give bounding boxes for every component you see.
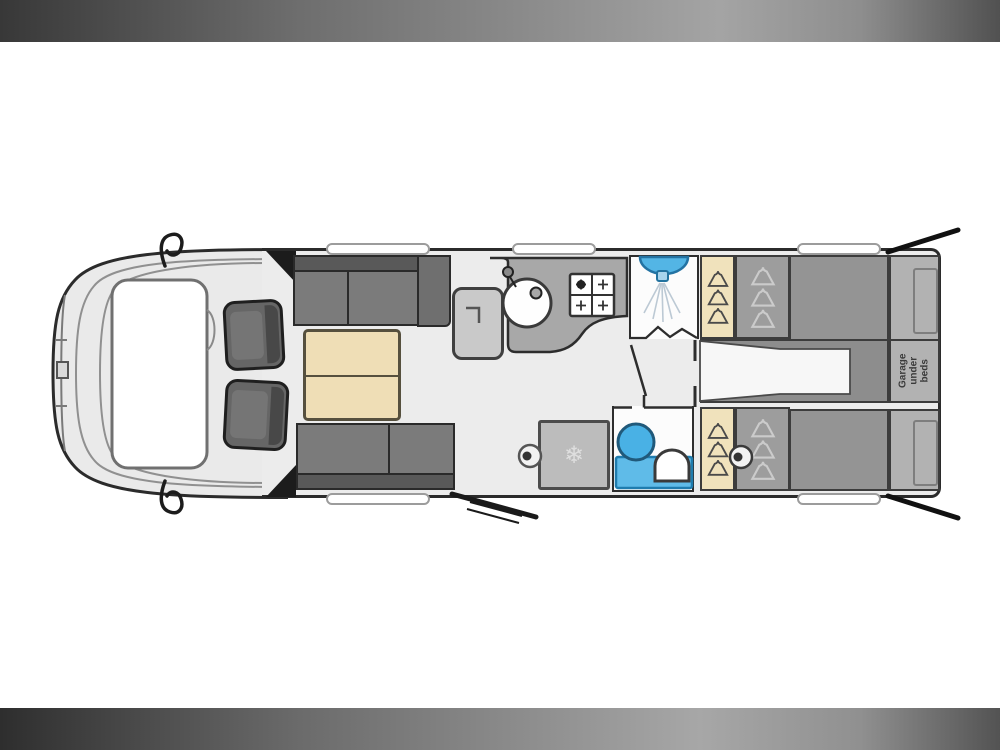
sofa-top-corner-seat	[417, 255, 451, 327]
cushion-divider	[388, 425, 390, 473]
entry-step-lines	[467, 502, 522, 523]
rear-corner-trim-bottom	[888, 496, 958, 518]
washroom	[612, 406, 694, 492]
seat-backrest	[264, 305, 280, 364]
window-top-lounge	[326, 243, 430, 255]
single-bed-bottom	[789, 409, 889, 491]
window-bottom-lounge	[326, 493, 430, 505]
bottom-gradient-bar	[0, 708, 1000, 750]
bonnet-line-outer	[76, 259, 288, 487]
wing-mirror-top-icon	[161, 234, 182, 266]
front-bumper-line	[61, 295, 65, 451]
garage-label: Garage under beds	[898, 348, 932, 395]
seat-cushion	[230, 390, 268, 440]
tv-cabinet	[452, 287, 504, 360]
seat-backrest	[268, 387, 284, 446]
snowflake-icon: ❄	[564, 441, 584, 470]
hanger-icon	[706, 418, 730, 480]
cab-seat-driver	[222, 298, 286, 371]
hanger-icon	[706, 266, 730, 328]
windscreen	[112, 280, 207, 468]
wardrobe-top-gray	[735, 255, 790, 339]
window-top-bedroom	[797, 243, 881, 255]
fridge: ❄	[538, 420, 610, 490]
window-bottom-bedroom	[797, 493, 881, 505]
cab-seat-passenger	[222, 378, 290, 451]
sofa-top-cushions	[293, 270, 419, 326]
garage-cell: Garage under beds	[889, 339, 940, 403]
shower-cubicle	[629, 255, 699, 339]
pillow-top	[913, 268, 938, 334]
pillow-bottom	[913, 420, 938, 486]
bumper-ticks	[56, 340, 67, 406]
floorplan-canvas: ❄	[0, 0, 1000, 750]
wardrobe-top-tan	[700, 255, 735, 339]
windscreen-bump	[207, 310, 215, 350]
seat-cushion	[230, 311, 264, 361]
front-badge	[57, 362, 68, 378]
single-bed-top	[789, 255, 889, 341]
dinette-table	[303, 329, 401, 421]
window-top-kitchen	[512, 243, 596, 255]
hanger-icon	[747, 415, 779, 483]
wing-mirror-bottom-icon	[161, 481, 182, 513]
table-leaf-split	[306, 375, 398, 377]
cushion-divider	[347, 272, 349, 324]
top-gradient-bar	[0, 0, 1000, 42]
sofa-bottom-backrest	[296, 473, 455, 490]
headboard-top	[889, 255, 940, 341]
cab-body-outline	[53, 250, 288, 498]
wardrobe-bottom-gray	[735, 407, 790, 491]
wardrobe-bottom-tan	[700, 407, 735, 491]
hanger-icon	[747, 263, 779, 331]
bonnet-line-inner	[100, 263, 266, 483]
bed-foot-platform	[700, 339, 889, 403]
headboard-bottom	[889, 409, 940, 491]
sofa-bottom-cushions	[296, 423, 455, 475]
